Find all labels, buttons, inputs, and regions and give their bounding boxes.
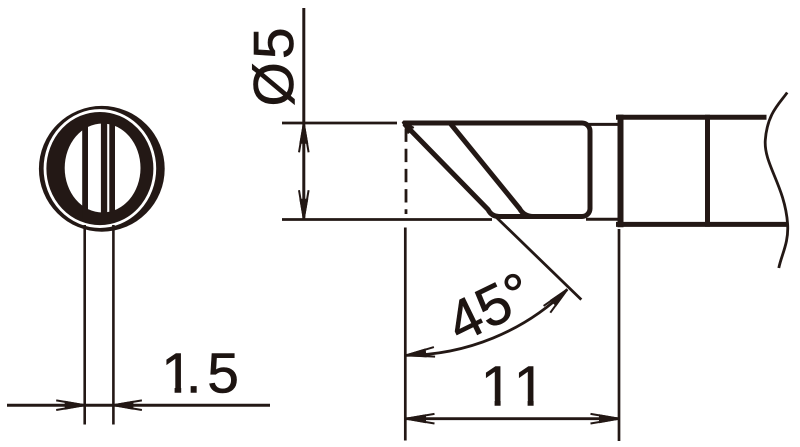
- svg-text:1: 1: [481, 354, 513, 418]
- svg-text:.: .: [186, 342, 202, 406]
- svg-text:Ø5: Ø5: [242, 24, 306, 106]
- svg-text:5: 5: [207, 342, 239, 406]
- svg-text:1: 1: [514, 354, 546, 418]
